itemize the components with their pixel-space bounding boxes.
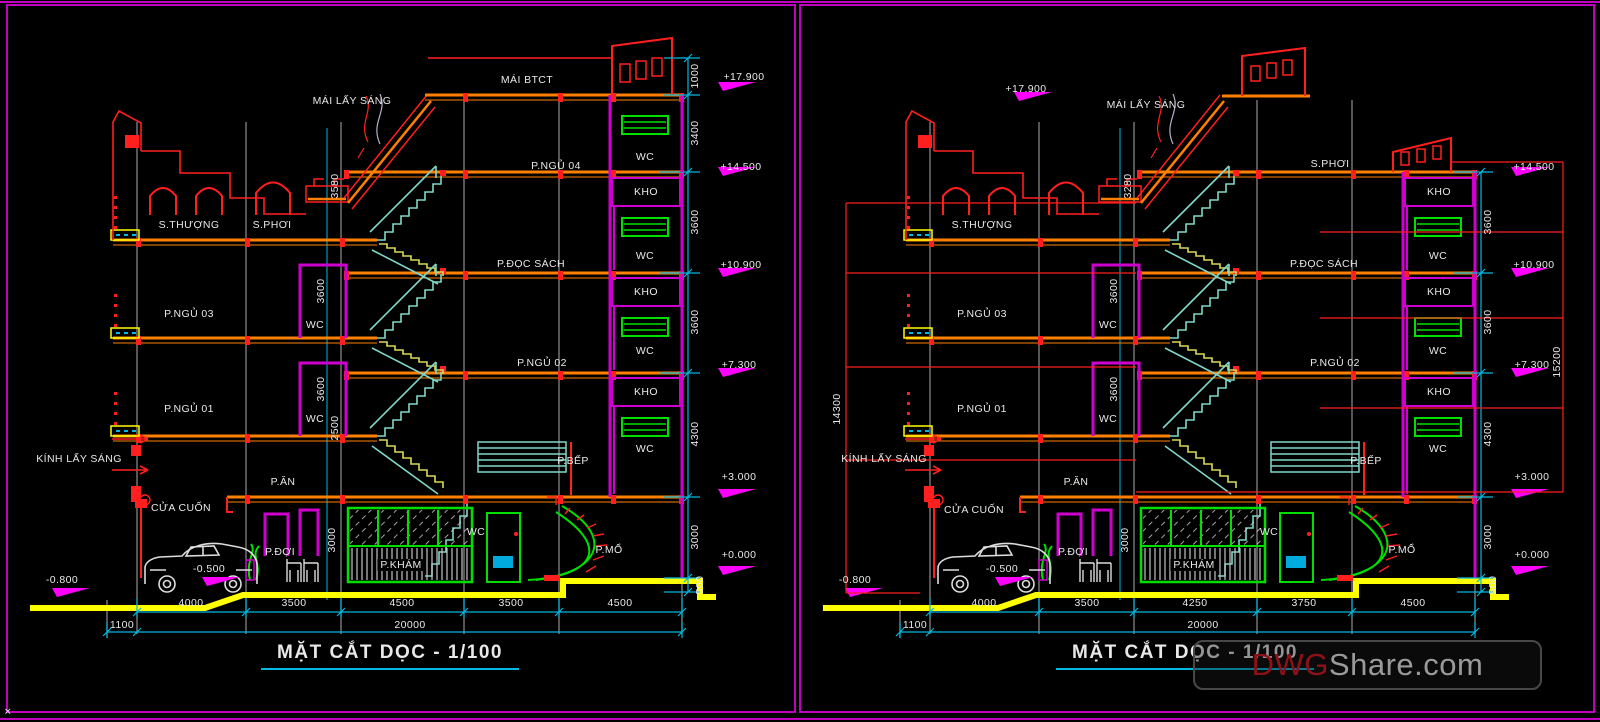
right-section-drawing bbox=[823, 48, 1563, 638]
watermark-prefix: DWG bbox=[1252, 647, 1329, 683]
watermark-suffix: Share.com bbox=[1329, 647, 1483, 683]
left-drawing-title: MẶT CẮT DỌC - 1/100 bbox=[261, 642, 519, 670]
cad-canvas: MÁI BTCTMÁI LẤY SÁNG+17.90010003400P.NGỦ… bbox=[0, 0, 1600, 722]
left-roof-and-top-dims bbox=[425, 38, 756, 172]
watermark: DWGShare.com bbox=[1193, 640, 1542, 690]
left-section-drawing bbox=[30, 38, 756, 638]
section-linework bbox=[0, 0, 1600, 722]
